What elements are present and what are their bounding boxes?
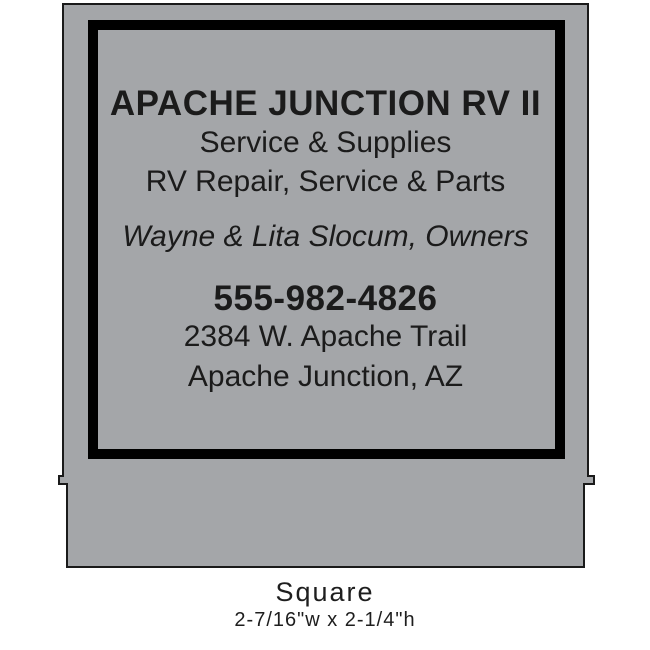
address-street: 2384 W. Apache Trail	[63, 319, 588, 355]
tagline-service-supplies: Service & Supplies	[63, 125, 588, 161]
dimensions-caption: 2-7/16"w x 2-1/4"h	[0, 608, 650, 632]
address-city-state: Apache Junction, AZ	[63, 359, 588, 395]
shape-name-caption: Square	[0, 576, 650, 608]
phone-number: 555-982-4826	[63, 278, 588, 320]
owners-line: Wayne & Lita Slocum, Owners	[63, 219, 588, 255]
product-preview: APACHE JUNCTION RV II Service & Supplies…	[0, 0, 650, 650]
business-name: APACHE JUNCTION RV II	[63, 83, 588, 125]
tagline-repair-parts: RV Repair, Service & Parts	[63, 164, 588, 200]
